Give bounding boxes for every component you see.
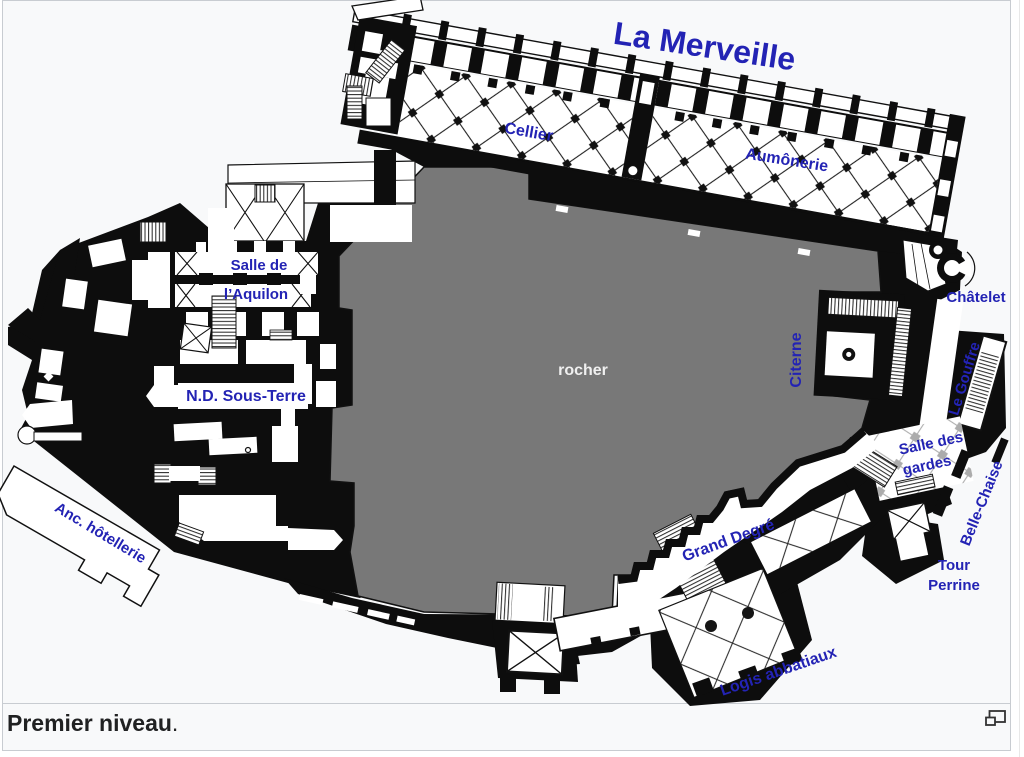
svg-text:Perrine: Perrine <box>928 577 980 594</box>
svg-text:l’Aquilon: l’Aquilon <box>224 286 288 303</box>
svg-text:Premier niveau.: Premier niveau. <box>7 710 178 736</box>
svg-text:Salle de: Salle de <box>231 257 288 274</box>
svg-text:Tour: Tour <box>938 557 970 574</box>
svg-text:N.D. Sous-Terre: N.D. Sous-Terre <box>186 388 306 405</box>
svg-text:Citerne: Citerne <box>788 332 805 387</box>
svg-text:rocher: rocher <box>558 362 608 379</box>
svg-text:Châtelet: Châtelet <box>946 289 1005 306</box>
